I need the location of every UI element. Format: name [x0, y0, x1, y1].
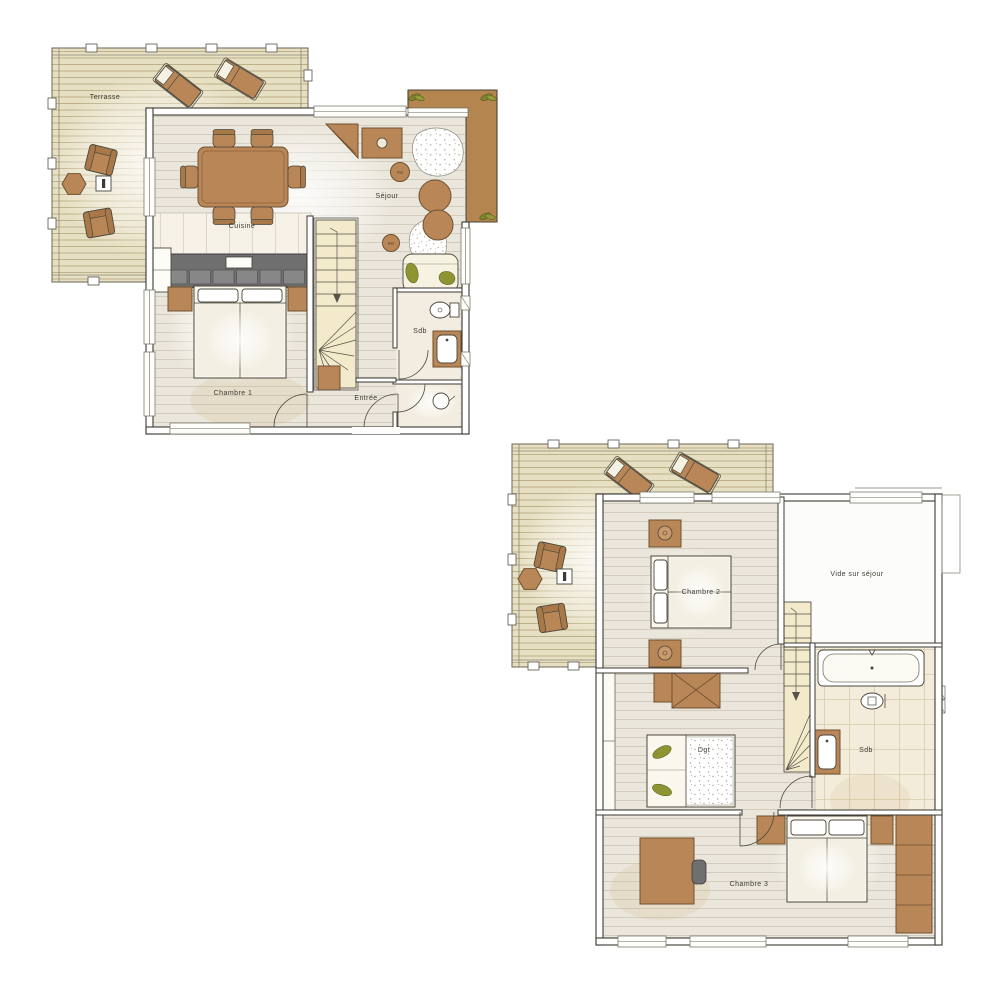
window	[640, 492, 694, 503]
room-label-vide-sur-sejour: Vide sur séjour	[830, 571, 884, 578]
room-label-sdb2: Sdb	[859, 747, 873, 754]
dining-chair-icon	[288, 166, 306, 188]
window	[144, 352, 155, 416]
radiator-marker: Rad	[383, 235, 400, 252]
fur-rug-icon	[412, 128, 463, 176]
window	[690, 936, 766, 947]
floor-plan-level-1: Rad Rad	[48, 44, 497, 434]
stairs-1	[316, 220, 356, 390]
floor-plan-level-2: Chambre 2 Vide sur séjour Dgt Sdb Chambr…	[508, 440, 960, 947]
entry-door-opening	[352, 427, 400, 434]
window	[461, 352, 470, 366]
nightstand-icon	[757, 816, 785, 844]
window	[314, 106, 406, 117]
window	[461, 228, 470, 284]
terrace-table-marker	[96, 176, 111, 191]
double-bed-icon	[787, 816, 867, 902]
kitchen-counter	[151, 248, 308, 292]
sink-icon	[814, 730, 840, 774]
window	[144, 290, 155, 344]
double-bed-icon	[194, 286, 286, 378]
armchair-icon	[83, 208, 115, 238]
desk-chair-icon	[692, 860, 706, 884]
room-label-sejour: Séjour	[376, 193, 399, 200]
room-label-chambre2: Chambre 2	[682, 589, 721, 596]
radiator-label: Rad	[388, 242, 394, 246]
stove-icon	[362, 128, 402, 158]
armchair-icon	[536, 603, 568, 633]
nightstand-lamp-icon	[649, 520, 681, 547]
room-label-terrasse: Terrasse	[90, 94, 120, 101]
radiator-marker: Rad	[391, 163, 410, 182]
sofa-icon	[403, 254, 458, 292]
floor-plan-sheet: Rad Rad	[0, 0, 1000, 1000]
room-label-chambre1: Chambre 1	[214, 390, 253, 397]
window	[848, 936, 908, 947]
wardrobe-x-icon	[672, 672, 720, 708]
pouf-icon	[423, 210, 453, 240]
room-label-entree: Entrée	[354, 395, 377, 402]
window	[618, 936, 666, 947]
window	[461, 296, 470, 310]
room-label-dgt: Dgt	[698, 747, 710, 754]
stairs-2	[784, 602, 811, 772]
toilet-icon	[430, 302, 459, 318]
room-label-cuisine: Cuisine	[229, 223, 256, 230]
nightstand-icon	[871, 816, 893, 844]
window	[170, 423, 250, 434]
room-label-sdb: Sdb	[413, 328, 427, 335]
dining-chair-icon	[251, 130, 273, 148]
single-bed-icon	[647, 735, 735, 807]
dresser-icon	[654, 673, 672, 702]
nightstand-lamp-icon	[649, 640, 681, 667]
dining-chair-icon	[213, 130, 235, 148]
armchair-icon	[534, 541, 567, 572]
dining-chair-icon	[213, 207, 235, 225]
radiator-label: Rad	[397, 171, 403, 175]
room-label-chambre3: Chambre 3	[730, 881, 769, 888]
floor-plan-drawing: Rad Rad	[0, 0, 1000, 1000]
dining-chair-icon	[181, 166, 199, 188]
dining-table-icon	[198, 147, 288, 207]
stair-newel-cabinet	[318, 366, 340, 390]
window	[144, 158, 155, 216]
window	[712, 492, 780, 503]
terrace-table-marker	[557, 569, 572, 584]
balcony-door-window	[408, 108, 468, 117]
dining-chair-icon	[251, 207, 273, 225]
bathtub-icon	[818, 650, 924, 686]
nightstand-icon	[168, 287, 192, 311]
kitchen-sink	[226, 257, 252, 268]
wardrobe-icon	[896, 815, 932, 933]
pouf-icon	[419, 180, 451, 212]
sink-icon	[433, 331, 461, 367]
window	[850, 492, 922, 503]
